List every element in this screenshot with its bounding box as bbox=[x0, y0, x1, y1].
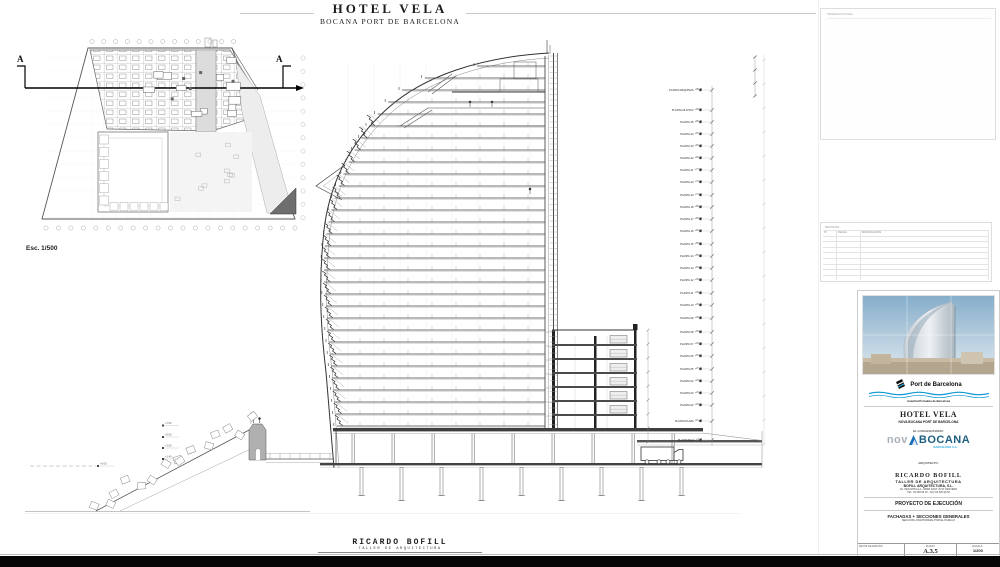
floor-elevation: +43.20 bbox=[695, 303, 702, 305]
floor-label-row: PLANTA 06+30.60 bbox=[665, 354, 702, 358]
floor-label: PLANTA 16 bbox=[680, 229, 693, 232]
revision-table-title: REVISION bbox=[825, 225, 991, 229]
dimension-lines bbox=[712, 55, 764, 446]
floor-label: PLANTA 25 bbox=[680, 120, 693, 123]
title-block: Port de Barcelona Autoritat Portuària de… bbox=[857, 290, 1000, 558]
floor-label: PLANTA 08 bbox=[680, 330, 693, 333]
floor-label-row: PLANTA 20+74.70 bbox=[665, 180, 702, 184]
floor-label: PLANTA PLAZA bbox=[675, 419, 694, 422]
novabocana-logo-part1: nov bbox=[887, 435, 908, 445]
floor-label: PLANTA 21 bbox=[680, 168, 693, 171]
plan-scale-label: Esc. 1/500 bbox=[26, 245, 57, 252]
elevation-marker-label: +1.40 bbox=[165, 455, 172, 459]
footer-firm-name: RICARDO BOFILL bbox=[318, 538, 482, 547]
floor-label: PLANTA BAJA bbox=[678, 438, 695, 441]
floor-label: PLANTA 15 bbox=[680, 242, 693, 245]
floor-label: PLANTA 24 bbox=[680, 132, 693, 135]
floor-elevation: +11.40 bbox=[695, 419, 702, 421]
floor-elevation: +58.95 bbox=[695, 242, 702, 244]
floor-label: PLANTA 14 bbox=[680, 254, 693, 257]
floor-label-row: PLANTA 17+65.25 bbox=[665, 217, 702, 221]
notes-box-label: OBSERVACIONES bbox=[827, 12, 991, 19]
floor-label-row: PLANTA PLAZA+11.40 bbox=[665, 419, 702, 423]
floor-label-row: PLANTA 26 ATICO+93.60 bbox=[665, 108, 702, 112]
floor-label: PLANTA 12 bbox=[680, 278, 693, 281]
floor-label-row: PLANTA 19+71.55 bbox=[665, 193, 702, 197]
floor-label-row: PLANTA 02+18.00 bbox=[665, 403, 702, 407]
divider bbox=[864, 406, 993, 407]
plan-dark-triangle bbox=[270, 188, 296, 214]
floor-plan bbox=[17, 38, 304, 219]
revision-table: REVISION NºFECHAMODIFICACION bbox=[820, 222, 992, 282]
floor-elevation: +18.00 bbox=[695, 403, 702, 405]
floor-elevation: +55.80 bbox=[695, 254, 702, 256]
page-title: HOTEL VELA bbox=[250, 1, 530, 17]
building-section bbox=[25, 40, 764, 514]
floor-elevation: +40.05 bbox=[695, 316, 702, 318]
novabocana-logo-part2: BOCANA bbox=[919, 435, 970, 445]
floor-label: PLANTA 03 bbox=[680, 391, 693, 394]
floor-elevation: +49.50 bbox=[695, 278, 702, 280]
port-logo-icon bbox=[895, 379, 906, 390]
concessionaire-label: EL CONCESIONARIO: bbox=[858, 429, 999, 433]
floor-label-row: PLANTA 08+36.90 bbox=[665, 330, 702, 334]
floor-label-row: PLANTA 10+43.20 bbox=[665, 303, 702, 307]
floor-label-row: PLANTA 14+55.80 bbox=[665, 254, 702, 258]
floor-elevation: +90.45 bbox=[695, 120, 702, 122]
novabocana-triangle-icon bbox=[909, 435, 918, 445]
breakwater bbox=[25, 412, 333, 512]
revision-empty-cell bbox=[823, 275, 837, 281]
floor-label: PLANTA 23 bbox=[680, 144, 693, 147]
floor-label-row: PLANTA 09+40.05 bbox=[665, 316, 702, 320]
floor-elevation: +46.35 bbox=[695, 291, 702, 293]
annex-block bbox=[552, 324, 638, 430]
sheet-content-subtitle: SECCION LONGITUDINAL POR EL PASILLO bbox=[858, 519, 999, 522]
figures bbox=[469, 101, 531, 194]
project-phase: PROYECTO DE EJECUCIÓN bbox=[858, 501, 999, 507]
page-subtitle: BOCANA PORT DE BARCELONA bbox=[250, 17, 530, 26]
floor-label-row: PLANTA 23+84.15 bbox=[665, 144, 702, 148]
port-logo-name: Port de Barcelona bbox=[910, 382, 961, 388]
floor-elevation: +62.10 bbox=[695, 229, 702, 231]
floor-label: PLANTA 26 ATICO bbox=[672, 108, 694, 111]
floor-label: PLANTA MAQUINAS bbox=[669, 88, 693, 91]
footer-firm: RICARDO BOFILL TALLER DE ARQUITECTURA bbox=[318, 538, 482, 553]
floor-label: PLANTA 13 bbox=[680, 266, 693, 269]
revision-empty-cell bbox=[861, 275, 989, 281]
section-marker-a-right: A bbox=[276, 54, 283, 64]
floor-label: PLANTA 07 bbox=[680, 342, 693, 345]
section-marker-a-left: A bbox=[17, 54, 24, 64]
elevation-marker-label: +0.00 bbox=[100, 462, 107, 466]
elevation-marker-label: +7.50 bbox=[165, 421, 172, 425]
architect-phone: TEL. 93 499 99 00 - FAX 93 499 99 50 bbox=[858, 491, 999, 494]
project-subtitle: NOVA BOCANA PORT DE BARCELONA bbox=[858, 420, 999, 424]
floor-label-row: PLANTA 11+46.35 bbox=[665, 291, 702, 295]
floor-label: PLANTA 04 bbox=[680, 379, 693, 382]
floor-label-row: PLANTA 21+77.85 bbox=[665, 168, 702, 172]
floor-label-row: PLANTA 22+81.00 bbox=[665, 156, 702, 160]
floor-elevation: +52.65 bbox=[695, 266, 702, 268]
novabocana-logo: nov BOCANA bbox=[858, 435, 999, 445]
floor-elevation: +93.60 bbox=[695, 108, 702, 110]
port-logo-wave bbox=[869, 391, 989, 398]
floor-label-row: PLANTA 03+21.15 bbox=[665, 391, 702, 395]
truck bbox=[641, 447, 683, 464]
divider bbox=[864, 510, 993, 511]
floor-elevation: +30.60 bbox=[695, 354, 702, 356]
floor-label: PLANTA 09 bbox=[680, 316, 693, 319]
floor-label: PLANTA 17 bbox=[680, 217, 693, 220]
section-line-AA bbox=[17, 66, 304, 91]
floor-label-row: PLANTA 16+62.10 bbox=[665, 229, 702, 233]
port-de-barcelona-logo: Port de Barcelona bbox=[858, 379, 999, 390]
floor-label-row: PLANTA 18+68.40 bbox=[665, 205, 702, 209]
floor-label-row: PLANTA 24+87.30 bbox=[665, 132, 702, 136]
floor-label: PLANTA 19 bbox=[680, 193, 693, 196]
floor-label: PLANTA 06 bbox=[680, 354, 693, 357]
field-escala-value: 1/200 bbox=[958, 548, 998, 553]
floor-elevation: +36.90 bbox=[695, 330, 702, 332]
right-margin-divider bbox=[818, 0, 819, 555]
building-photo bbox=[862, 295, 995, 375]
floor-elevation: +33.75 bbox=[695, 342, 702, 344]
floor-elevation: +71.55 bbox=[695, 193, 702, 195]
floor-label-row: PLANTA 07+33.75 bbox=[665, 342, 702, 346]
floor-label-row: PLANTA 25+90.45 bbox=[665, 120, 702, 124]
floor-label: PLANTA 20 bbox=[680, 180, 693, 183]
revision-empty-cell bbox=[837, 275, 861, 281]
floor-label-row: PLANTA MAQUINAS+98.75 bbox=[665, 88, 702, 92]
sail-curve bbox=[321, 53, 549, 468]
field-date-label: FECHA DE EDICIÓN bbox=[859, 545, 903, 548]
architect-label: ARQUITECTO: bbox=[858, 461, 999, 465]
floor-elevation: +24.30 bbox=[695, 379, 702, 381]
floor-elevation: +4.20 bbox=[696, 438, 702, 440]
notes-box: OBSERVACIONES bbox=[820, 8, 996, 140]
floor-elevation: +81.00 bbox=[695, 156, 702, 158]
elevation-marker-label: +2.50 bbox=[165, 444, 172, 448]
floor-label: PLANTA 18 bbox=[680, 205, 693, 208]
ground-works bbox=[25, 428, 762, 514]
floor-elevation: +98.75 bbox=[695, 88, 702, 90]
floor-label: PLANTA 10 bbox=[680, 303, 693, 306]
sheet-bottom-edge bbox=[0, 554, 1000, 555]
floor-elevation: +68.40 bbox=[695, 205, 702, 207]
floor-label-row: PLANTA 13+52.65 bbox=[665, 266, 702, 270]
bottom-black-bar bbox=[0, 556, 1000, 567]
floor-label: PLANTA 22 bbox=[680, 156, 693, 159]
floor-elevation: +65.25 bbox=[695, 217, 702, 219]
elevation-marker-label: +5.00 bbox=[165, 433, 172, 437]
floor-label: PLANTA 02 bbox=[680, 403, 693, 406]
revision-table-grid: NºFECHAMODIFICACION bbox=[823, 230, 989, 280]
floor-label-row: PLANTA 12+49.50 bbox=[665, 278, 702, 282]
drawing-sheet: HOTEL VELA BOCANA PORT DE BARCELONA bbox=[0, 0, 1000, 567]
divider bbox=[864, 497, 993, 498]
floor-elevation: +84.15 bbox=[695, 144, 702, 146]
sheet-header: HOTEL VELA BOCANA PORT DE BARCELONA bbox=[250, 1, 530, 26]
drawing-canvas: +7.50+5.00+2.50+1.40+0.00 bbox=[0, 0, 820, 556]
floor-elevation: +27.45 bbox=[695, 367, 702, 369]
floor-elevation: +21.15 bbox=[695, 391, 702, 393]
footer-firm-subname: TALLER DE ARQUITECTURA bbox=[318, 547, 482, 551]
floor-label: PLANTA 11 bbox=[680, 291, 693, 294]
floor-label-row: PLANTA 04+24.30 bbox=[665, 379, 702, 383]
project-title: HOTEL VELA bbox=[858, 410, 999, 419]
port-logo-subtext: Autoritat Portuària de Barcelona bbox=[858, 399, 999, 403]
floor-elevation: +74.70 bbox=[695, 180, 702, 182]
floor-label: PLANTA 05 bbox=[680, 367, 693, 370]
floor-label-row: PLANTA 15+58.95 bbox=[665, 242, 702, 246]
floor-label-row: PLANTA 05+27.45 bbox=[665, 367, 702, 371]
floor-label-row: PLANTA BAJA+4.20 bbox=[665, 438, 702, 442]
floor-elevation: +77.85 bbox=[695, 168, 702, 170]
floor-elevation: +87.30 bbox=[695, 132, 702, 134]
